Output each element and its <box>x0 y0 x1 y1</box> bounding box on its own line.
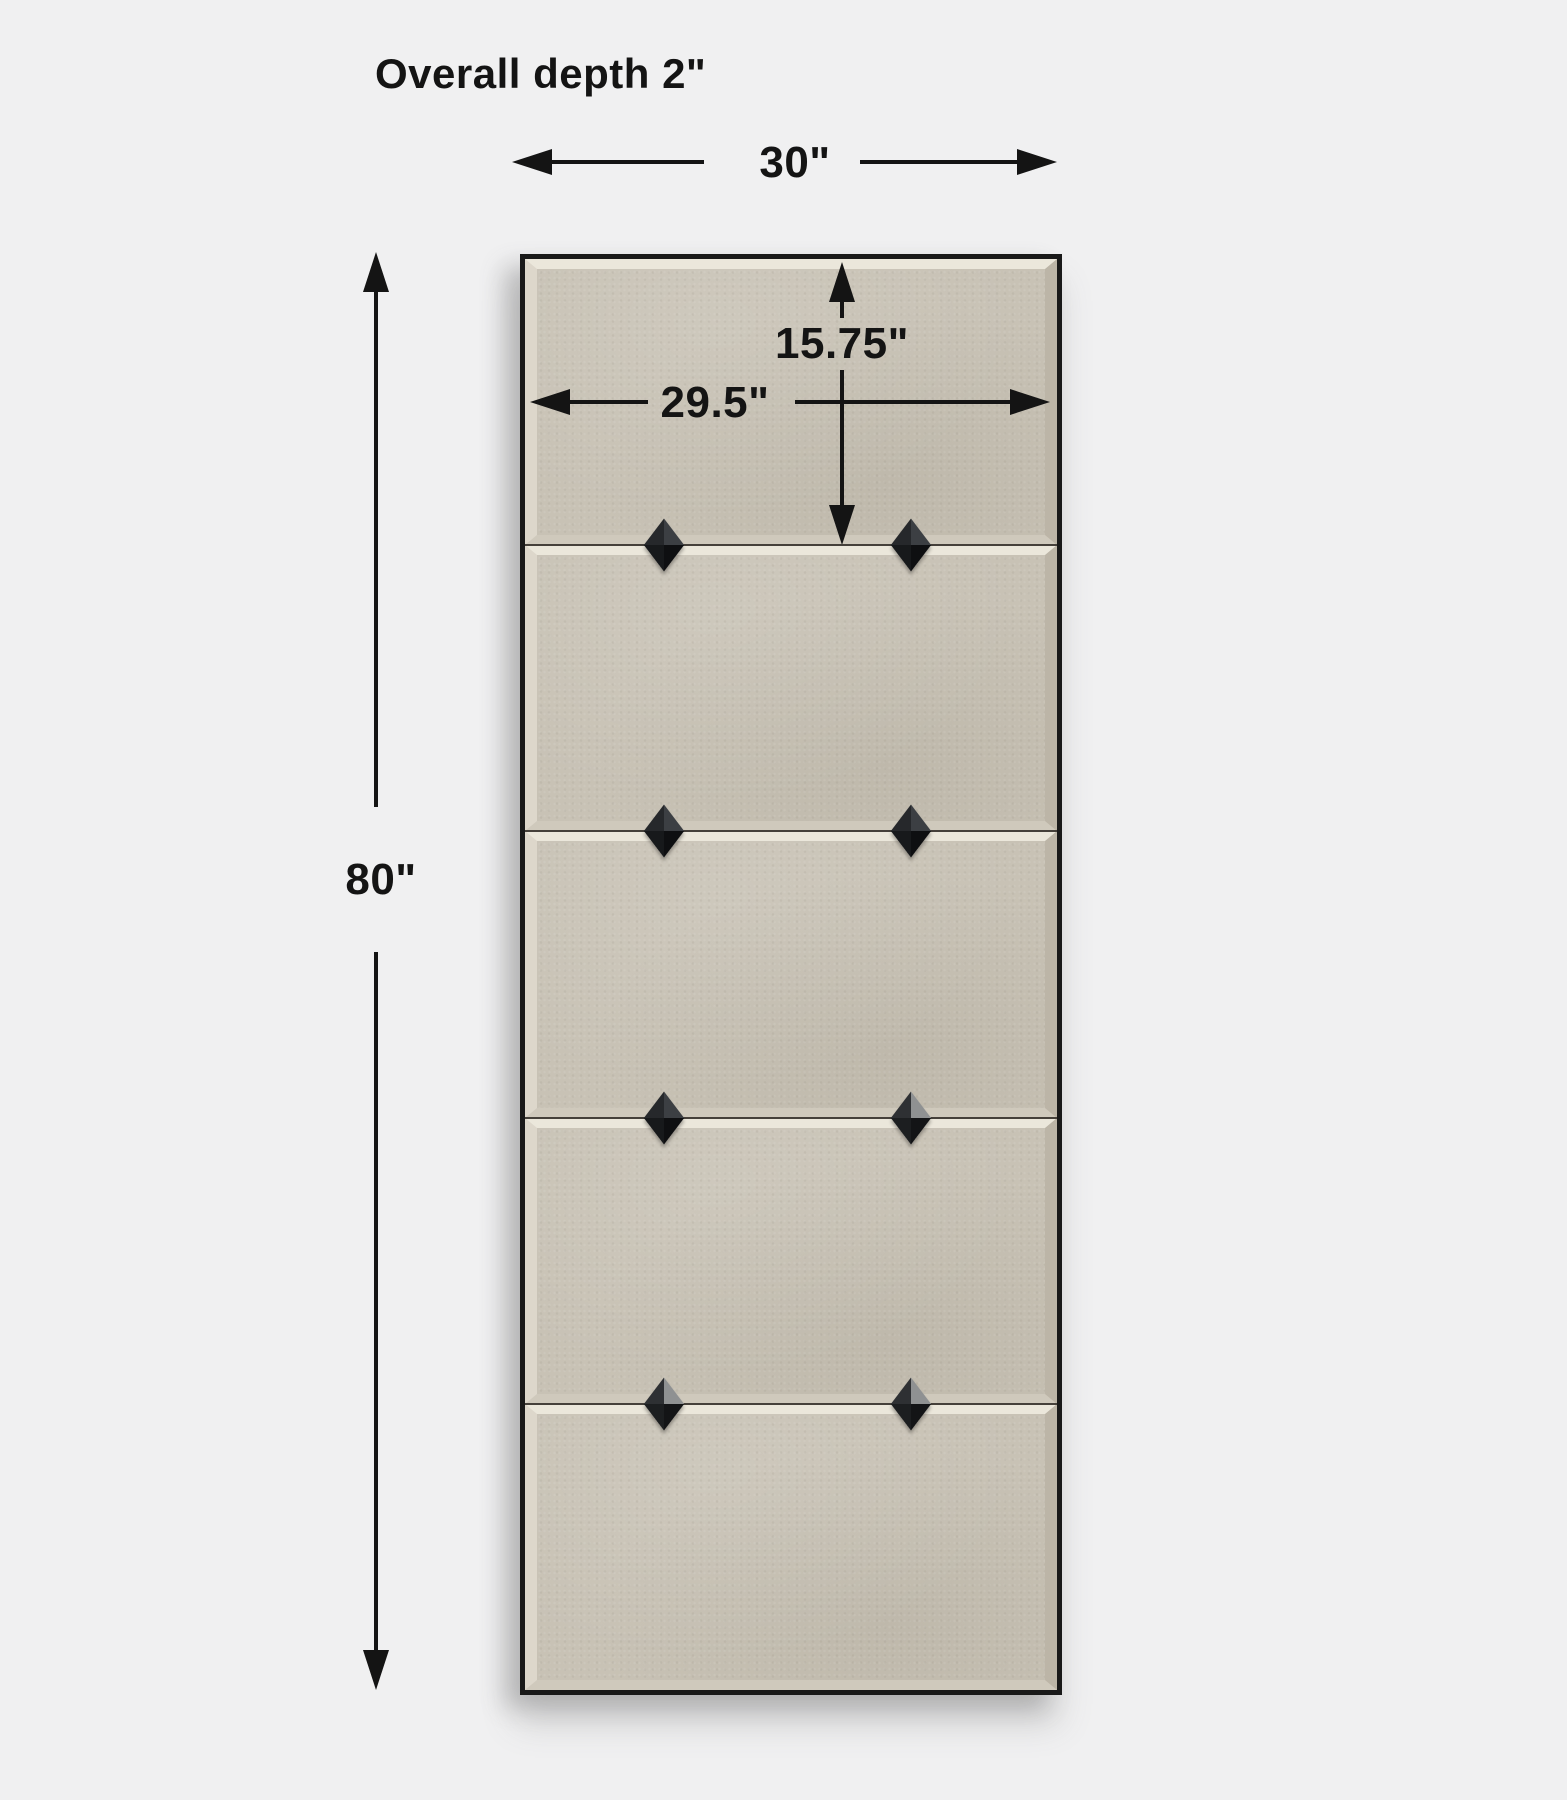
overall-height-label: 80" <box>345 855 416 905</box>
panel-junction-line <box>525 544 1057 546</box>
panel-junction-line <box>525 1403 1057 1405</box>
dimension-line <box>860 160 1017 164</box>
dimension-line <box>567 400 648 404</box>
arrow-left-icon <box>512 149 552 175</box>
arrow-left-icon <box>530 389 570 415</box>
mirror-section <box>525 831 1057 1117</box>
overall-width-label: 30" <box>759 138 830 188</box>
panel-junction-line <box>525 1117 1057 1119</box>
panel-height-label: 15.75" <box>775 319 909 369</box>
mirror-frame <box>520 254 1062 1695</box>
arrow-right-icon <box>1010 389 1050 415</box>
product-dimension-diagram: Overall depth 2" 30" 80" 29.5" 15.75" <box>0 0 1567 1800</box>
dimension-line <box>374 952 378 1652</box>
overall-depth-label: Overall depth 2" <box>375 50 706 98</box>
mirror-section <box>525 545 1057 831</box>
panel-junction-line <box>525 830 1057 832</box>
dimension-line <box>549 160 704 164</box>
mirror-inner <box>525 259 1057 1690</box>
arrow-up-icon <box>363 252 389 292</box>
mirror-width-label: 29.5" <box>661 378 770 428</box>
mirror-section <box>525 1118 1057 1404</box>
mirror-section <box>525 1404 1057 1690</box>
dimension-line <box>840 370 844 506</box>
dimension-line <box>795 400 1010 404</box>
dimension-line <box>840 300 844 318</box>
arrow-down-icon <box>363 1650 389 1690</box>
arrow-down-icon <box>829 505 855 545</box>
dimension-line <box>374 290 378 807</box>
arrow-right-icon <box>1017 149 1057 175</box>
arrow-up-icon <box>829 262 855 302</box>
